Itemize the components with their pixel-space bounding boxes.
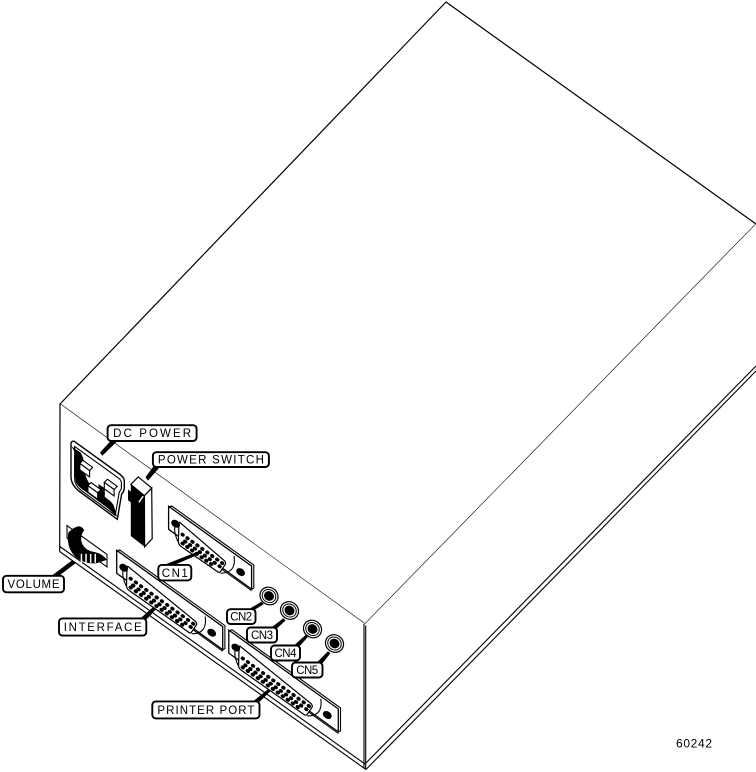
svg-text:60242: 60242 — [676, 737, 712, 751]
svg-text:CN2: CN2 — [230, 612, 252, 624]
svg-text:CN5: CN5 — [296, 665, 318, 677]
svg-text:CN1: CN1 — [162, 568, 188, 580]
svg-text:VOLUME: VOLUME — [8, 579, 60, 591]
svg-text:INTERFACE: INTERFACE — [64, 622, 142, 634]
svg-text:PRINTER PORT: PRINTER PORT — [157, 705, 254, 717]
svg-text:CN4: CN4 — [275, 648, 298, 660]
svg-text:CN3: CN3 — [251, 630, 273, 642]
svg-text:POWER SWITCH: POWER SWITCH — [158, 455, 264, 467]
svg-text:DC POWER: DC POWER — [113, 428, 191, 440]
